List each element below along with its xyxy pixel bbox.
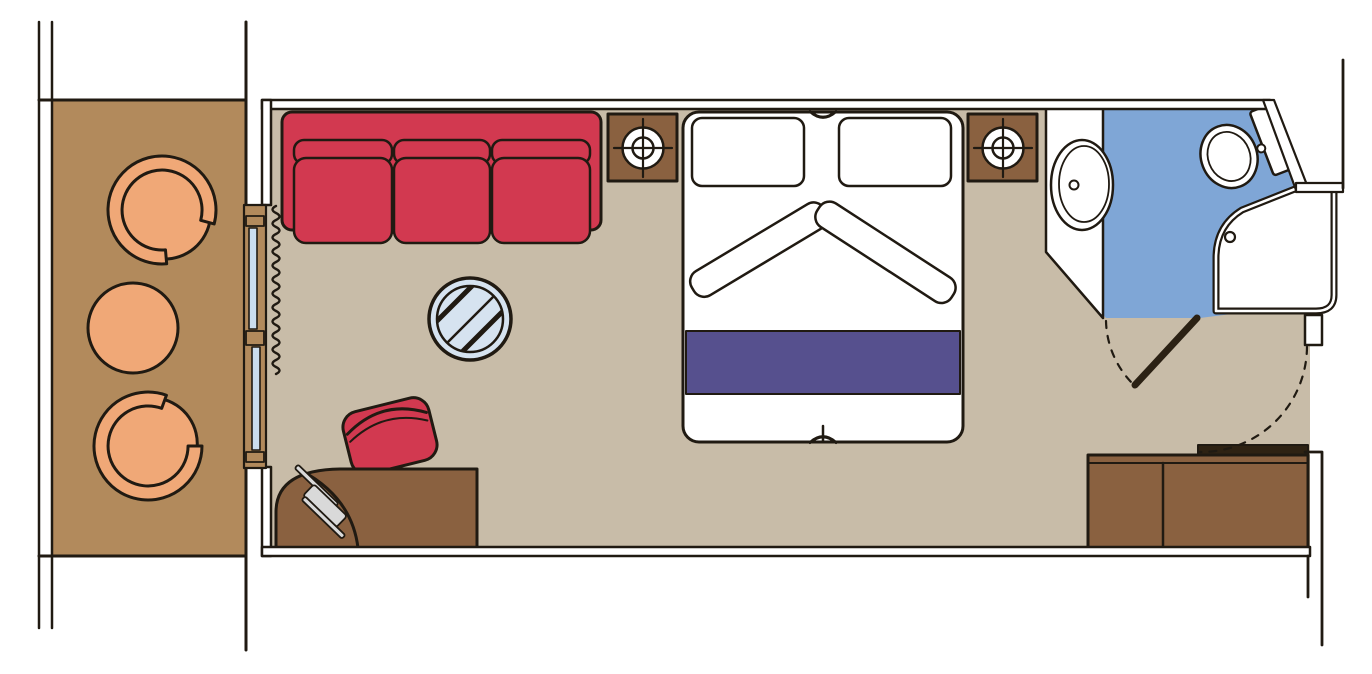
sink (1051, 140, 1113, 230)
wardrobe (1088, 455, 1308, 548)
pillow-left (692, 118, 804, 186)
sink-drain (1070, 181, 1079, 190)
wall-left-upper (262, 100, 271, 205)
sofa-seat-cushion (492, 158, 590, 243)
sofa-seat-cushion (394, 158, 490, 243)
bathroom (1046, 103, 1334, 318)
sofa-three-seat (282, 112, 601, 243)
sofa-seat-cushion (294, 158, 392, 243)
wardrobe-body (1088, 455, 1308, 548)
wall-bottom (262, 547, 1310, 556)
shower-drain (1225, 232, 1235, 242)
balcony-round-table (88, 283, 178, 373)
pillow-right (839, 118, 951, 186)
floor-plan-svg (0, 0, 1372, 674)
ship-hull-lines (39, 22, 52, 628)
wall-left-lower (262, 467, 271, 556)
desk-top (276, 469, 477, 548)
entrance-door-jamb (1305, 315, 1322, 345)
nightstand-right (968, 114, 1037, 181)
sink-basin (1051, 140, 1113, 230)
door-frame-block (246, 452, 264, 462)
sofa-cushions (294, 140, 590, 243)
cabin-floor-plan (0, 0, 1372, 674)
desk (276, 465, 477, 548)
glass-pane-2 (252, 347, 260, 450)
wall-nib-right (1296, 183, 1343, 192)
nightstand-left (608, 114, 677, 181)
plan-root (39, 22, 1343, 650)
door-frame-block (246, 216, 264, 226)
wall-top (262, 100, 1270, 109)
sliding-glass-door (244, 205, 266, 468)
bed-runner (686, 331, 960, 394)
double-bed (683, 112, 963, 443)
door-frame-block (246, 331, 264, 345)
glass-pane-1 (249, 228, 257, 329)
